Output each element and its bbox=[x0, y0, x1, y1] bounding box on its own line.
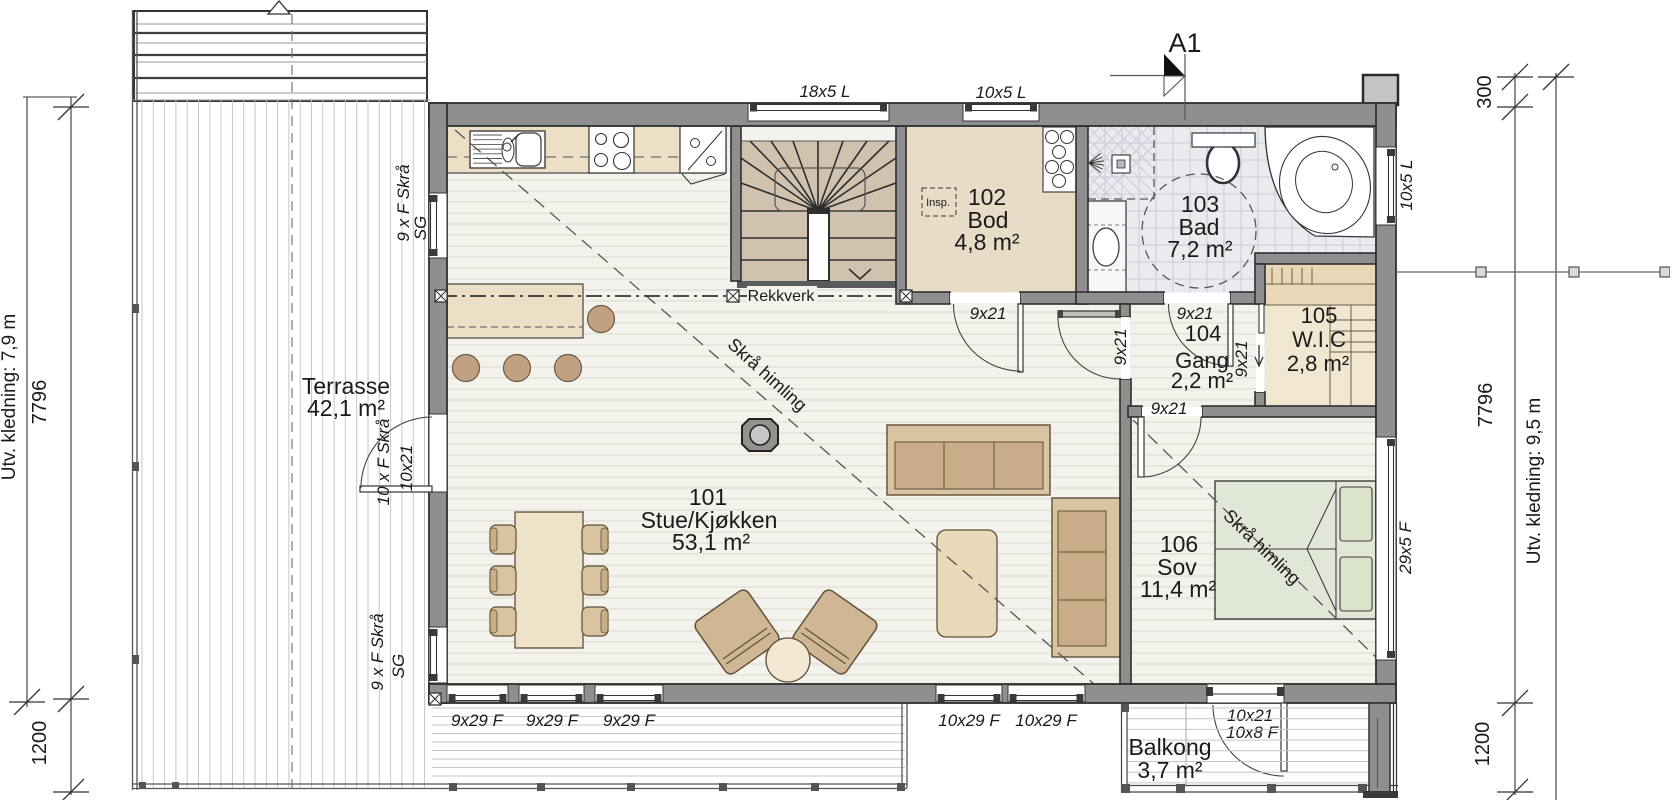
svg-text:105: 105 bbox=[1301, 303, 1338, 328]
svg-text:SG: SG bbox=[389, 654, 408, 679]
svg-text:Utv. kledning: 7,9 m: Utv. kledning: 7,9 m bbox=[0, 314, 20, 481]
svg-text:9x21: 9x21 bbox=[970, 304, 1007, 323]
svg-text:7796: 7796 bbox=[29, 380, 51, 425]
svg-text:10x29 F: 10x29 F bbox=[1015, 711, 1078, 730]
svg-text:2,8 m²: 2,8 m² bbox=[1287, 351, 1349, 376]
svg-text:300: 300 bbox=[1474, 75, 1496, 108]
svg-text:10x5 L: 10x5 L bbox=[975, 83, 1026, 102]
svg-text:4,8 m²: 4,8 m² bbox=[954, 229, 1020, 255]
svg-text:10x21: 10x21 bbox=[397, 445, 416, 491]
svg-text:3,7 m²: 3,7 m² bbox=[1137, 757, 1203, 783]
svg-text:10x5 L: 10x5 L bbox=[1397, 159, 1416, 210]
svg-text:9x21: 9x21 bbox=[1232, 341, 1251, 378]
svg-text:9 x F Skrå: 9 x F Skrå bbox=[368, 613, 387, 690]
svg-text:SG: SG bbox=[411, 216, 430, 241]
svg-text:Insp.: Insp. bbox=[926, 197, 950, 209]
svg-text:Rekkverk: Rekkverk bbox=[748, 288, 816, 305]
svg-text:29x5 F: 29x5 F bbox=[1396, 520, 1415, 575]
svg-text:10 x F Skrå: 10 x F Skrå bbox=[374, 419, 393, 506]
svg-text:A1: A1 bbox=[1168, 28, 1201, 58]
svg-text:7,2 m²: 7,2 m² bbox=[1167, 236, 1233, 262]
svg-text:9x29 F: 9x29 F bbox=[451, 711, 505, 730]
svg-text:11,4 m²: 11,4 m² bbox=[1140, 576, 1217, 602]
svg-text:W.I.C: W.I.C bbox=[1292, 327, 1346, 352]
svg-text:Utv. kledning: 9,5 m: Utv. kledning: 9,5 m bbox=[1524, 398, 1545, 565]
svg-text:7796: 7796 bbox=[1475, 383, 1497, 428]
svg-text:2,2 m²: 2,2 m² bbox=[1171, 368, 1233, 393]
svg-text:1200: 1200 bbox=[29, 721, 51, 766]
svg-text:9x21: 9x21 bbox=[1111, 329, 1130, 366]
svg-text:10x8 F: 10x8 F bbox=[1226, 723, 1280, 742]
svg-text:9x29 F: 9x29 F bbox=[603, 711, 657, 730]
svg-text:42,1 m²: 42,1 m² bbox=[307, 395, 385, 421]
svg-text:18x5 L: 18x5 L bbox=[799, 82, 850, 101]
svg-text:9x29 F: 9x29 F bbox=[526, 711, 580, 730]
svg-text:1200: 1200 bbox=[1472, 722, 1494, 767]
svg-text:104: 104 bbox=[1185, 321, 1222, 346]
svg-text:9x21: 9x21 bbox=[1151, 399, 1188, 418]
svg-text:10x29 F: 10x29 F bbox=[938, 711, 1001, 730]
svg-text:53,1 m²: 53,1 m² bbox=[672, 529, 750, 555]
